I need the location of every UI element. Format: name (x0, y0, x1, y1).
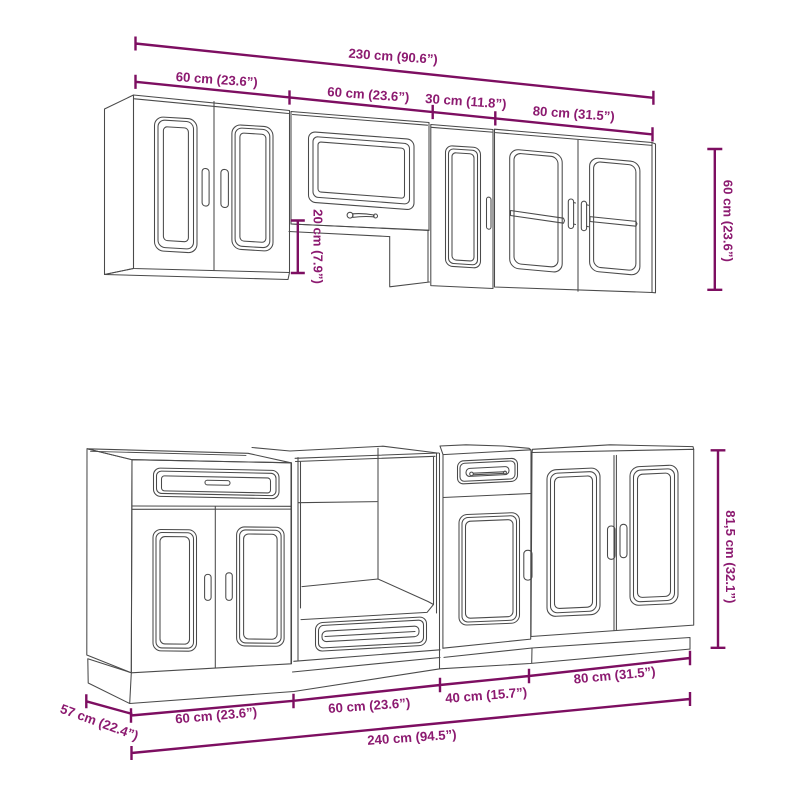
svg-text:20 cm (7.9”): 20 cm (7.9”) (310, 209, 325, 284)
svg-text:60 cm (23.6”): 60 cm (23.6”) (720, 180, 735, 262)
svg-text:81,5 cm (32.1”): 81,5 cm (32.1”) (723, 510, 738, 603)
